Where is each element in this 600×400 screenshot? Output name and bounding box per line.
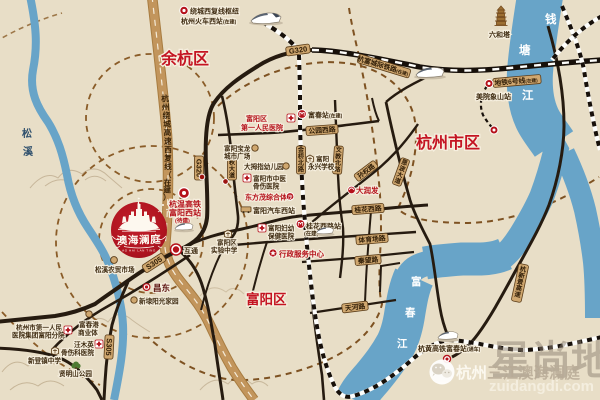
svg-text:富阳妇幼: 富阳妇幼 [268, 224, 295, 233]
svg-text:骨伤科医院: 骨伤科医院 [61, 348, 94, 357]
svg-text:六和塔: 六和塔 [489, 30, 511, 39]
svg-text:杭州市第一人民: 杭州市第一人民 [16, 323, 63, 332]
svg-text:富阳区: 富阳区 [246, 291, 287, 307]
svg-text:东方茂综合体: 东方茂综合体 [245, 193, 288, 202]
svg-text:富阳市中医: 富阳市中医 [253, 174, 286, 183]
svg-text:永兴学校: 永兴学校 [307, 162, 335, 171]
svg-text:富阳区: 富阳区 [217, 238, 237, 247]
svg-text:澳海澜庭: 澳海澜庭 [117, 233, 162, 248]
svg-text:富阳宝龙: 富阳宝龙 [224, 144, 251, 153]
svg-text:杭温高铁: 杭温高铁 [169, 199, 201, 209]
svg-text:(在建): (在建) [304, 230, 319, 238]
svg-text:骨伤医院: 骨伤医院 [253, 182, 280, 191]
svg-text:实验中学: 实验中学 [211, 246, 238, 255]
svg-text:金桥北路: 金桥北路 [297, 146, 305, 174]
svg-text:余杭区: 余杭区 [160, 49, 209, 68]
svg-text:富春港: 富春港 [79, 320, 99, 329]
svg-text:新登镇中学: 新登镇中学 [28, 356, 61, 365]
svg-text:城市广场: 城市广场 [224, 152, 251, 161]
svg-text:AO HAI LAN TING: AO HAI LAN TING [122, 249, 156, 253]
svg-text:昌东: 昌东 [153, 283, 171, 293]
svg-text:茂: 茂 [287, 194, 292, 201]
svg-text:大拇指幼儿园: 大拇指幼儿园 [244, 162, 284, 171]
svg-text:富阳西站: 富阳西站 [169, 208, 201, 218]
svg-text:第一人民医院: 第一人民医院 [241, 123, 283, 132]
svg-text:绕城西复线枢纽: 绕城西复线枢纽 [190, 7, 239, 16]
svg-text:医院集团富阳分院: 医院集团富阳分院 [12, 331, 65, 340]
svg-text:富阳: 富阳 [316, 155, 330, 164]
svg-text:富阳汽车西站: 富阳汽车西站 [253, 206, 295, 215]
svg-text:松溪农贸市场: 松溪农贸市场 [95, 265, 135, 274]
svg-text:贤明山公园: 贤明山公园 [59, 369, 92, 378]
svg-text:汪木英: 汪木英 [74, 340, 94, 349]
svg-text:S305: S305 [104, 338, 114, 356]
svg-text:商业体: 商业体 [78, 328, 98, 337]
svg-text:美院象山站: 美院象山站 [476, 92, 511, 101]
svg-text:互通: 互通 [184, 246, 199, 255]
svg-text:富阳区: 富阳区 [246, 114, 267, 123]
svg-text:zuidangdi.com: zuidangdi.com [489, 378, 594, 395]
svg-text:新埭阳光家园: 新埭阳光家园 [139, 297, 179, 306]
svg-text:大润发: 大润发 [356, 185, 379, 195]
svg-text:杭州市区: 杭州市区 [416, 133, 480, 152]
svg-text:行政服务中心: 行政服务中心 [278, 249, 324, 259]
svg-text:保健医院: 保健医院 [267, 232, 295, 241]
